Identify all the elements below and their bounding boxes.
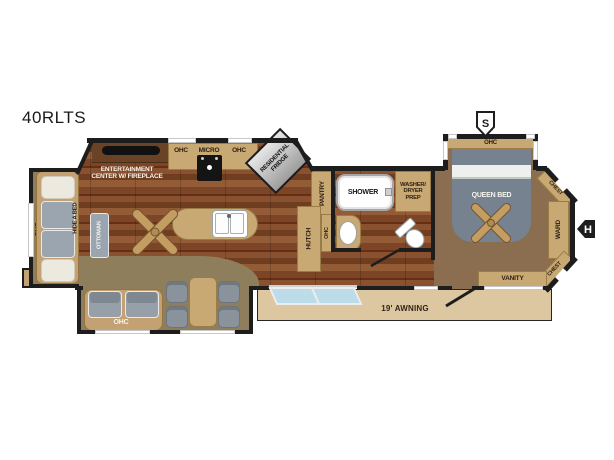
hutch-label: HUTCH bbox=[297, 206, 321, 272]
sofa-pillow bbox=[41, 259, 75, 282]
interior-wall bbox=[331, 248, 361, 252]
window bbox=[414, 286, 438, 290]
fridge-label: RESIDENTIALFRIDGE bbox=[260, 143, 296, 179]
theater-seat-back bbox=[127, 292, 157, 303]
bedroom-ohc-label: OHC bbox=[447, 138, 534, 149]
window bbox=[448, 134, 457, 139]
sink-basin bbox=[230, 213, 244, 234]
interior-wall bbox=[331, 170, 335, 252]
ottoman-label: OTTOMAN bbox=[90, 213, 109, 258]
wall bbox=[29, 168, 79, 172]
shower-label: SHOWER bbox=[336, 174, 390, 211]
window bbox=[95, 330, 150, 334]
dinette-chair bbox=[166, 281, 188, 303]
wall bbox=[570, 199, 575, 261]
window bbox=[168, 138, 196, 143]
dinette-table bbox=[189, 277, 217, 327]
theater-ohc-label: OHC bbox=[98, 317, 144, 329]
s-marker-label: S bbox=[482, 118, 489, 130]
dinette-chair bbox=[218, 306, 240, 328]
window bbox=[443, 141, 448, 160]
wardrobe-label: WARD bbox=[548, 201, 569, 259]
shower-head-icon bbox=[385, 188, 392, 196]
interior-wall bbox=[399, 248, 431, 252]
window bbox=[533, 141, 538, 160]
window bbox=[180, 330, 235, 334]
theater-seat-back bbox=[90, 292, 120, 303]
wall bbox=[443, 134, 538, 139]
bed-sheet bbox=[452, 165, 531, 179]
range-burner-icon bbox=[207, 165, 212, 170]
bathroom-sink bbox=[339, 221, 357, 245]
interior-wall bbox=[431, 168, 435, 260]
h-marker-label: H bbox=[584, 224, 592, 236]
vanity-label: VANITY bbox=[478, 271, 547, 287]
window bbox=[28, 203, 34, 257]
window bbox=[228, 138, 252, 143]
wall bbox=[536, 166, 547, 171]
wall bbox=[77, 288, 81, 334]
hide-a-bed-label: HIDE A BED bbox=[69, 186, 83, 250]
washer-dryer-prep-label: WASHER/ DRYER PREP bbox=[395, 173, 431, 210]
window bbox=[484, 286, 543, 290]
range-knob-icon bbox=[215, 157, 218, 160]
entertainment-label: ENTERTAINMENT CENTER W/ FIREPLACE bbox=[80, 162, 174, 184]
range-knob-icon bbox=[201, 157, 204, 160]
dinette-chair bbox=[218, 281, 240, 303]
queen-bed-label: QUEEN BED bbox=[452, 190, 531, 202]
entry-threshold bbox=[269, 285, 357, 288]
ohc-right-label: OHC bbox=[226, 145, 252, 157]
dinette-chair bbox=[166, 306, 188, 328]
window bbox=[526, 134, 535, 139]
floorplan-canvas: 40RLTS 19' AWNING OHC HIDE A BED OTTOMAN… bbox=[0, 0, 614, 460]
tv-icon bbox=[102, 146, 160, 155]
awning-label: 19' AWNING bbox=[330, 303, 480, 315]
h-marker bbox=[577, 220, 595, 238]
s-marker bbox=[477, 112, 494, 136]
model-title: 40RLTS bbox=[22, 108, 86, 128]
sink-faucet-icon bbox=[227, 214, 231, 218]
wall bbox=[29, 284, 79, 288]
ohc-left-label: OHC bbox=[168, 145, 194, 157]
wall bbox=[249, 288, 253, 334]
